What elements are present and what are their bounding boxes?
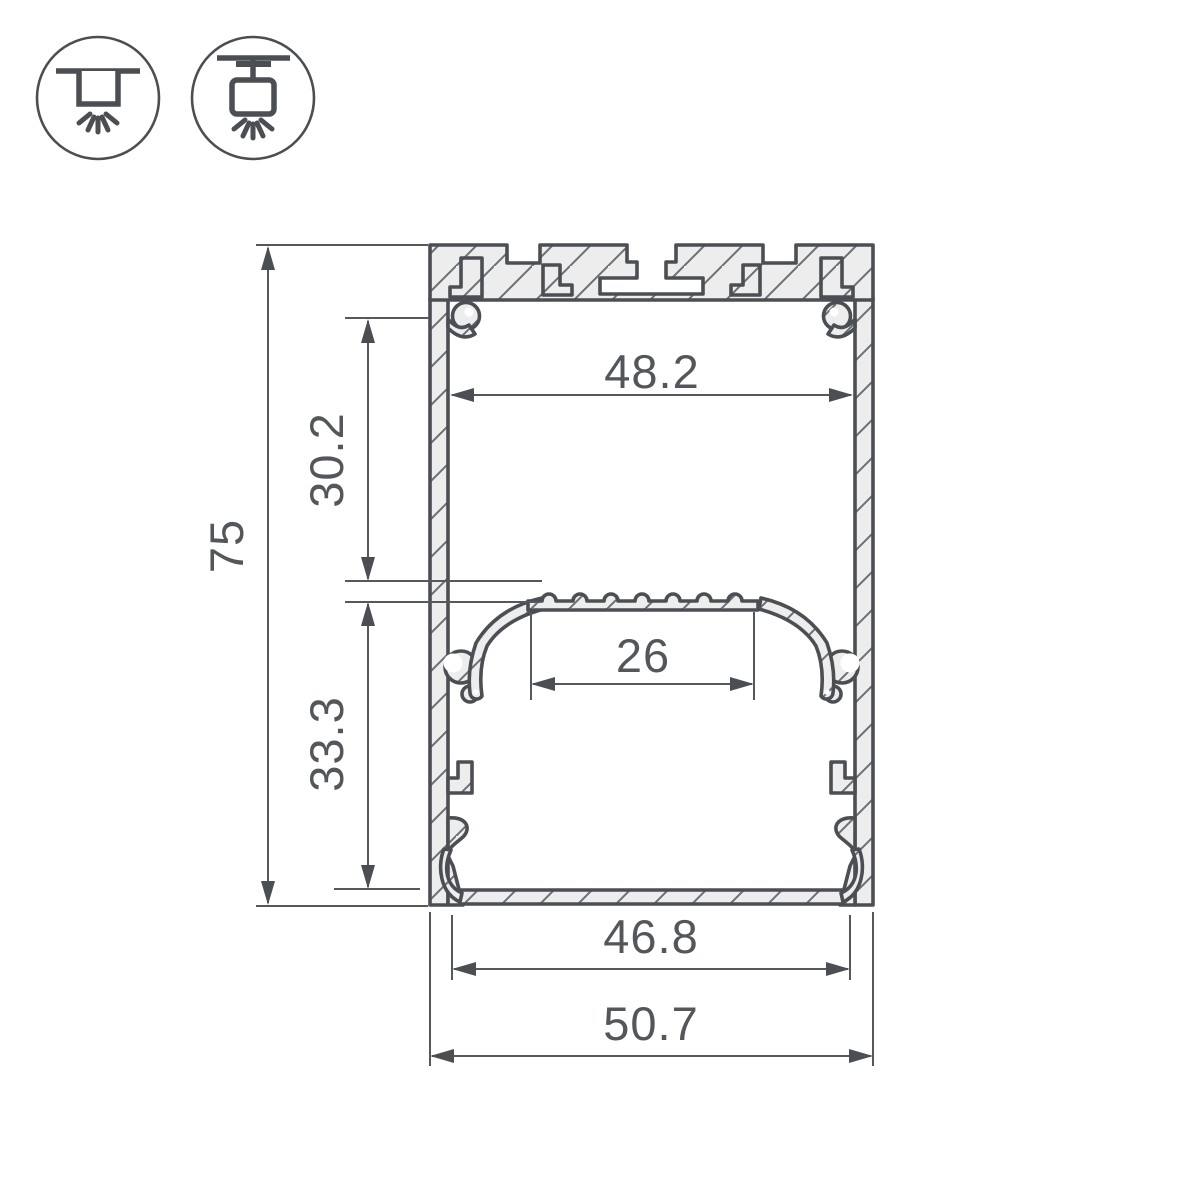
mount-type-icons xyxy=(37,37,314,159)
left-nose-clip xyxy=(448,818,467,852)
extension-lines xyxy=(256,245,873,1066)
surface-ceiling-mount-icon xyxy=(37,37,159,159)
dim-top-inner-width: 48.2 xyxy=(450,345,853,402)
upper-screw-boss-right xyxy=(824,303,856,337)
drawing-canvas: 48.2 30.2 33.3 75 26 xyxy=(0,0,1200,1200)
suspended-pendant-mount-icon xyxy=(192,37,314,159)
left-wing-tip-dot xyxy=(473,689,479,695)
dim-bottom-inner-width: 46.8 xyxy=(452,910,850,976)
dim-led-platform-width-label: 26 xyxy=(616,629,670,682)
right-lower-hook xyxy=(831,762,855,793)
light-rays xyxy=(79,114,117,132)
right-wall xyxy=(855,298,873,905)
diffuser-plate xyxy=(460,890,843,904)
right-wing-tip-dot xyxy=(824,689,830,695)
upper-screw-boss-left xyxy=(448,303,480,337)
right-nose-clip xyxy=(836,818,855,852)
luminaire-box xyxy=(232,80,274,114)
technical-drawing-svg: 48.2 30.2 33.3 75 26 xyxy=(0,0,1200,1200)
dim-lower-section-height-label: 33.3 xyxy=(300,696,353,791)
left-lower-hook xyxy=(448,762,472,793)
dim-overall-width-label: 50.7 xyxy=(603,997,698,1050)
led-platform-plate xyxy=(528,594,758,610)
dim-top-inner-width-label: 48.2 xyxy=(604,345,699,398)
luminaire-box xyxy=(79,71,118,104)
dim-overall-height: 75 xyxy=(200,246,275,905)
dimension-annotations: 48.2 30.2 33.3 75 26 xyxy=(200,245,873,1066)
led-platform-right-wing xyxy=(759,598,834,699)
dim-lower-section-height: 33.3 xyxy=(300,602,375,889)
dim-upper-section-height-label: 30.2 xyxy=(300,412,353,507)
light-rays xyxy=(234,120,272,138)
dim-bottom-inner-width-label: 46.8 xyxy=(603,910,698,963)
dim-overall-height-label: 75 xyxy=(200,519,253,573)
profile-cross-section xyxy=(430,245,873,905)
dim-led-platform-width: 26 xyxy=(531,629,754,691)
dim-upper-section-height: 30.2 xyxy=(300,319,375,581)
dim-overall-width: 50.7 xyxy=(430,997,873,1063)
top-mounting-band xyxy=(430,245,873,300)
